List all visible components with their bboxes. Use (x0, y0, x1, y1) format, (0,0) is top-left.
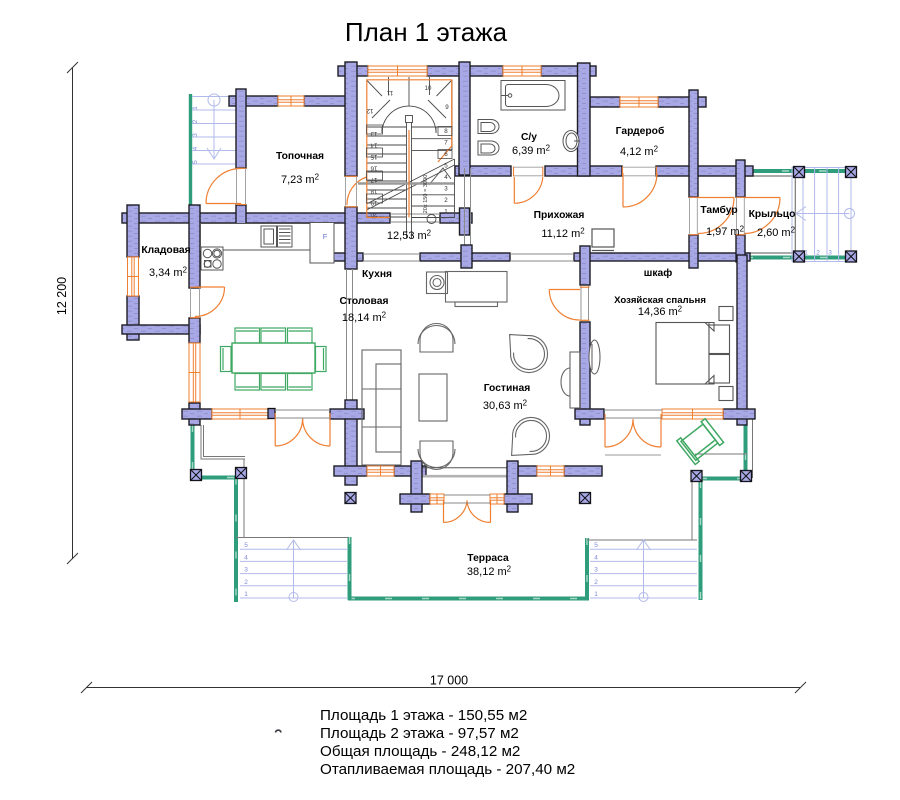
svg-text:Прихожая: Прихожая (534, 210, 585, 221)
svg-text:3: 3 (244, 567, 248, 574)
svg-text:12,53 m2: 12,53 m2 (387, 229, 431, 243)
svg-text:шкаф: шкаф (644, 267, 672, 279)
svg-text:19: 19 (370, 199, 377, 206)
svg-text:7: 7 (444, 140, 448, 147)
svg-text:Отапливаемая площадь - 207,40: Отапливаемая площадь - 207,40 м2 (320, 761, 575, 778)
svg-text:6: 6 (444, 151, 448, 158)
svg-text:17 000: 17 000 (430, 674, 468, 688)
svg-text:17: 17 (370, 176, 377, 183)
svg-text:1: 1 (192, 106, 199, 110)
svg-text:12 200: 12 200 (55, 277, 69, 315)
svg-text:Площадь 1 этажа - 150,55 м2: Площадь 1 этажа - 150,55 м2 (320, 707, 527, 724)
svg-text:3: 3 (444, 186, 448, 193)
svg-text:2: 2 (816, 250, 820, 257)
svg-text:3,34 m2: 3,34 m2 (149, 266, 187, 280)
svg-text:2: 2 (192, 119, 199, 123)
svg-text:30,63 m2: 30,63 m2 (483, 399, 527, 413)
svg-text:4: 4 (444, 174, 448, 181)
svg-text:1: 1 (444, 209, 448, 216)
svg-text:12: 12 (366, 107, 373, 114)
svg-text:11: 11 (386, 89, 393, 96)
svg-text:План 1 этажа: План 1 этажа (345, 17, 508, 47)
svg-text:7,23 m2: 7,23 m2 (281, 173, 319, 187)
svg-text:Топочная: Топочная (276, 151, 324, 162)
svg-text:4: 4 (192, 146, 199, 150)
svg-text:4: 4 (244, 554, 248, 561)
svg-text:20: 20 (370, 211, 377, 218)
svg-text:2: 2 (594, 579, 598, 586)
svg-text:Хозяйская спальня: Хозяйская спальня (614, 295, 706, 306)
svg-text:Столовая: Столовая (339, 296, 388, 307)
svg-text:11,12 m2: 11,12 m2 (541, 227, 584, 241)
svg-text:2,60 m2: 2,60 m2 (757, 226, 795, 240)
svg-text:1: 1 (244, 591, 248, 598)
svg-text:9: 9 (445, 104, 449, 111)
svg-text:2: 2 (244, 579, 248, 586)
svg-text:38,12 m2: 38,12 m2 (467, 565, 511, 579)
svg-text:14,36 m2: 14,36 m2 (638, 305, 682, 319)
svg-text:10: 10 (425, 85, 432, 92)
svg-text:F: F (323, 232, 328, 241)
svg-text:1: 1 (594, 591, 598, 598)
svg-text:Тамбур: Тамбур (700, 204, 737, 216)
svg-text:18,14 m2: 18,14 m2 (342, 311, 386, 325)
svg-text:16: 16 (370, 165, 377, 172)
svg-text:Кухня: Кухня (362, 269, 392, 280)
svg-text:14: 14 (370, 142, 377, 149)
svg-text:3: 3 (192, 133, 199, 137)
svg-text:Гардероб: Гардероб (616, 125, 665, 137)
svg-text:6,39 m2: 6,39 m2 (512, 144, 550, 158)
svg-text:8: 8 (444, 128, 448, 135)
svg-text:5: 5 (192, 160, 199, 164)
svg-text:13: 13 (370, 130, 377, 137)
svg-text:Площадь 2 этажа - 97,57 м2: Площадь 2 этажа - 97,57 м2 (320, 725, 519, 742)
svg-text:Общая площадь - 248,12 м2: Общая площадь - 248,12 м2 (320, 743, 520, 760)
svg-text:5: 5 (594, 542, 598, 549)
svg-text:Крыльцо: Крыльцо (749, 209, 796, 220)
svg-text:20x 150 = 3000: 20x 150 = 3000 (423, 175, 429, 214)
svg-text:4: 4 (594, 554, 598, 561)
svg-text:15: 15 (370, 153, 377, 160)
svg-text:Терраса: Терраса (467, 553, 509, 564)
svg-text:1,97 m2: 1,97 m2 (706, 225, 744, 239)
svg-text:4,12 m2: 4,12 m2 (620, 145, 658, 159)
svg-text:5: 5 (244, 542, 248, 549)
svg-text:5: 5 (444, 163, 448, 170)
svg-text:18: 18 (370, 188, 377, 195)
svg-text:3: 3 (828, 250, 832, 257)
svg-text:3: 3 (594, 567, 598, 574)
svg-text:2: 2 (444, 197, 448, 204)
svg-text:Кладовая: Кладовая (141, 245, 190, 256)
svg-text:С/у: С/у (521, 132, 537, 143)
svg-text:Гостиная: Гостиная (484, 383, 531, 394)
